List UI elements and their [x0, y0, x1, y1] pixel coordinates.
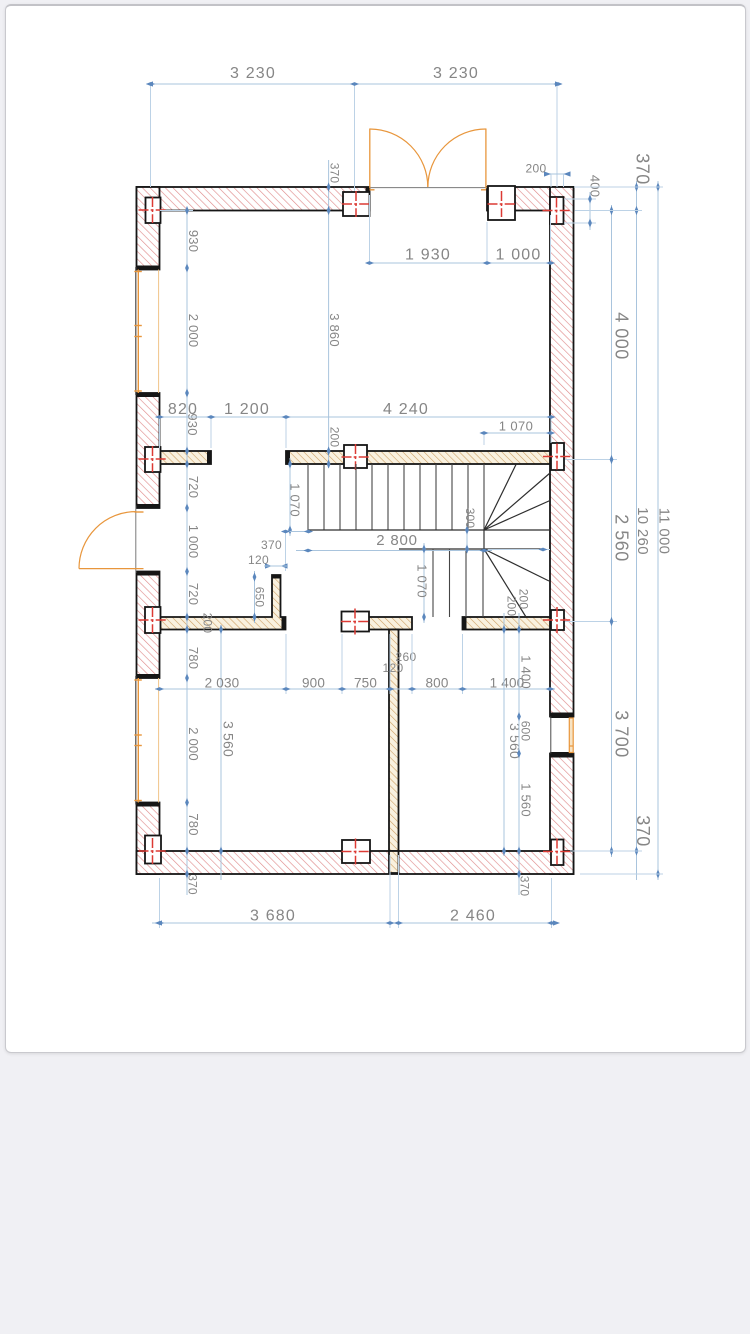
- svg-text:1 070: 1 070: [288, 483, 303, 517]
- svg-text:750: 750: [354, 676, 377, 691]
- svg-text:200: 200: [505, 596, 519, 617]
- svg-text:1 000: 1 000: [186, 525, 201, 559]
- svg-text:2 000: 2 000: [186, 727, 201, 761]
- svg-text:2 460: 2 460: [450, 908, 496, 925]
- svg-text:3 230: 3 230: [433, 65, 479, 82]
- svg-text:2 000: 2 000: [186, 314, 201, 348]
- svg-text:2 030: 2 030: [205, 676, 240, 691]
- svg-text:720: 720: [186, 583, 201, 605]
- svg-text:370: 370: [633, 815, 653, 847]
- svg-text:900: 900: [302, 676, 325, 691]
- svg-text:200: 200: [328, 427, 342, 448]
- svg-text:4 240: 4 240: [383, 401, 429, 418]
- svg-text:650: 650: [253, 587, 267, 608]
- svg-text:370: 370: [633, 153, 653, 185]
- svg-text:300: 300: [463, 508, 477, 529]
- svg-text:3 680: 3 680: [250, 908, 296, 925]
- svg-text:370: 370: [328, 163, 342, 184]
- svg-text:2 800: 2 800: [376, 532, 418, 549]
- svg-text:1 070: 1 070: [415, 564, 430, 598]
- svg-text:3 230: 3 230: [230, 65, 276, 82]
- svg-text:1 200: 1 200: [224, 401, 270, 418]
- svg-text:200: 200: [526, 162, 547, 176]
- svg-text:720: 720: [186, 476, 201, 498]
- svg-text:930: 930: [186, 230, 201, 252]
- svg-text:370: 370: [186, 874, 200, 895]
- svg-text:370: 370: [518, 876, 532, 897]
- svg-text:11 000: 11 000: [656, 508, 673, 555]
- svg-text:780: 780: [186, 647, 201, 669]
- svg-text:3 560: 3 560: [221, 721, 237, 757]
- svg-text:1 070: 1 070: [499, 419, 534, 434]
- svg-text:800: 800: [425, 676, 448, 691]
- svg-text:1 400: 1 400: [519, 655, 534, 689]
- svg-text:600: 600: [519, 721, 533, 742]
- svg-text:1 000: 1 000: [495, 247, 541, 264]
- svg-text:1 560: 1 560: [519, 783, 534, 817]
- svg-text:10 260: 10 260: [634, 507, 651, 555]
- svg-text:370: 370: [261, 538, 282, 552]
- svg-text:1 930: 1 930: [405, 247, 451, 264]
- svg-text:200: 200: [201, 613, 215, 634]
- svg-text:3 860: 3 860: [327, 313, 342, 347]
- svg-text:4 000: 4 000: [612, 312, 632, 360]
- svg-text:780: 780: [186, 813, 201, 835]
- svg-text:3 700: 3 700: [612, 710, 632, 758]
- svg-text:2 560: 2 560: [612, 514, 632, 562]
- svg-text:820: 820: [168, 401, 198, 418]
- svg-text:120: 120: [383, 661, 404, 675]
- svg-text:400: 400: [588, 175, 603, 197]
